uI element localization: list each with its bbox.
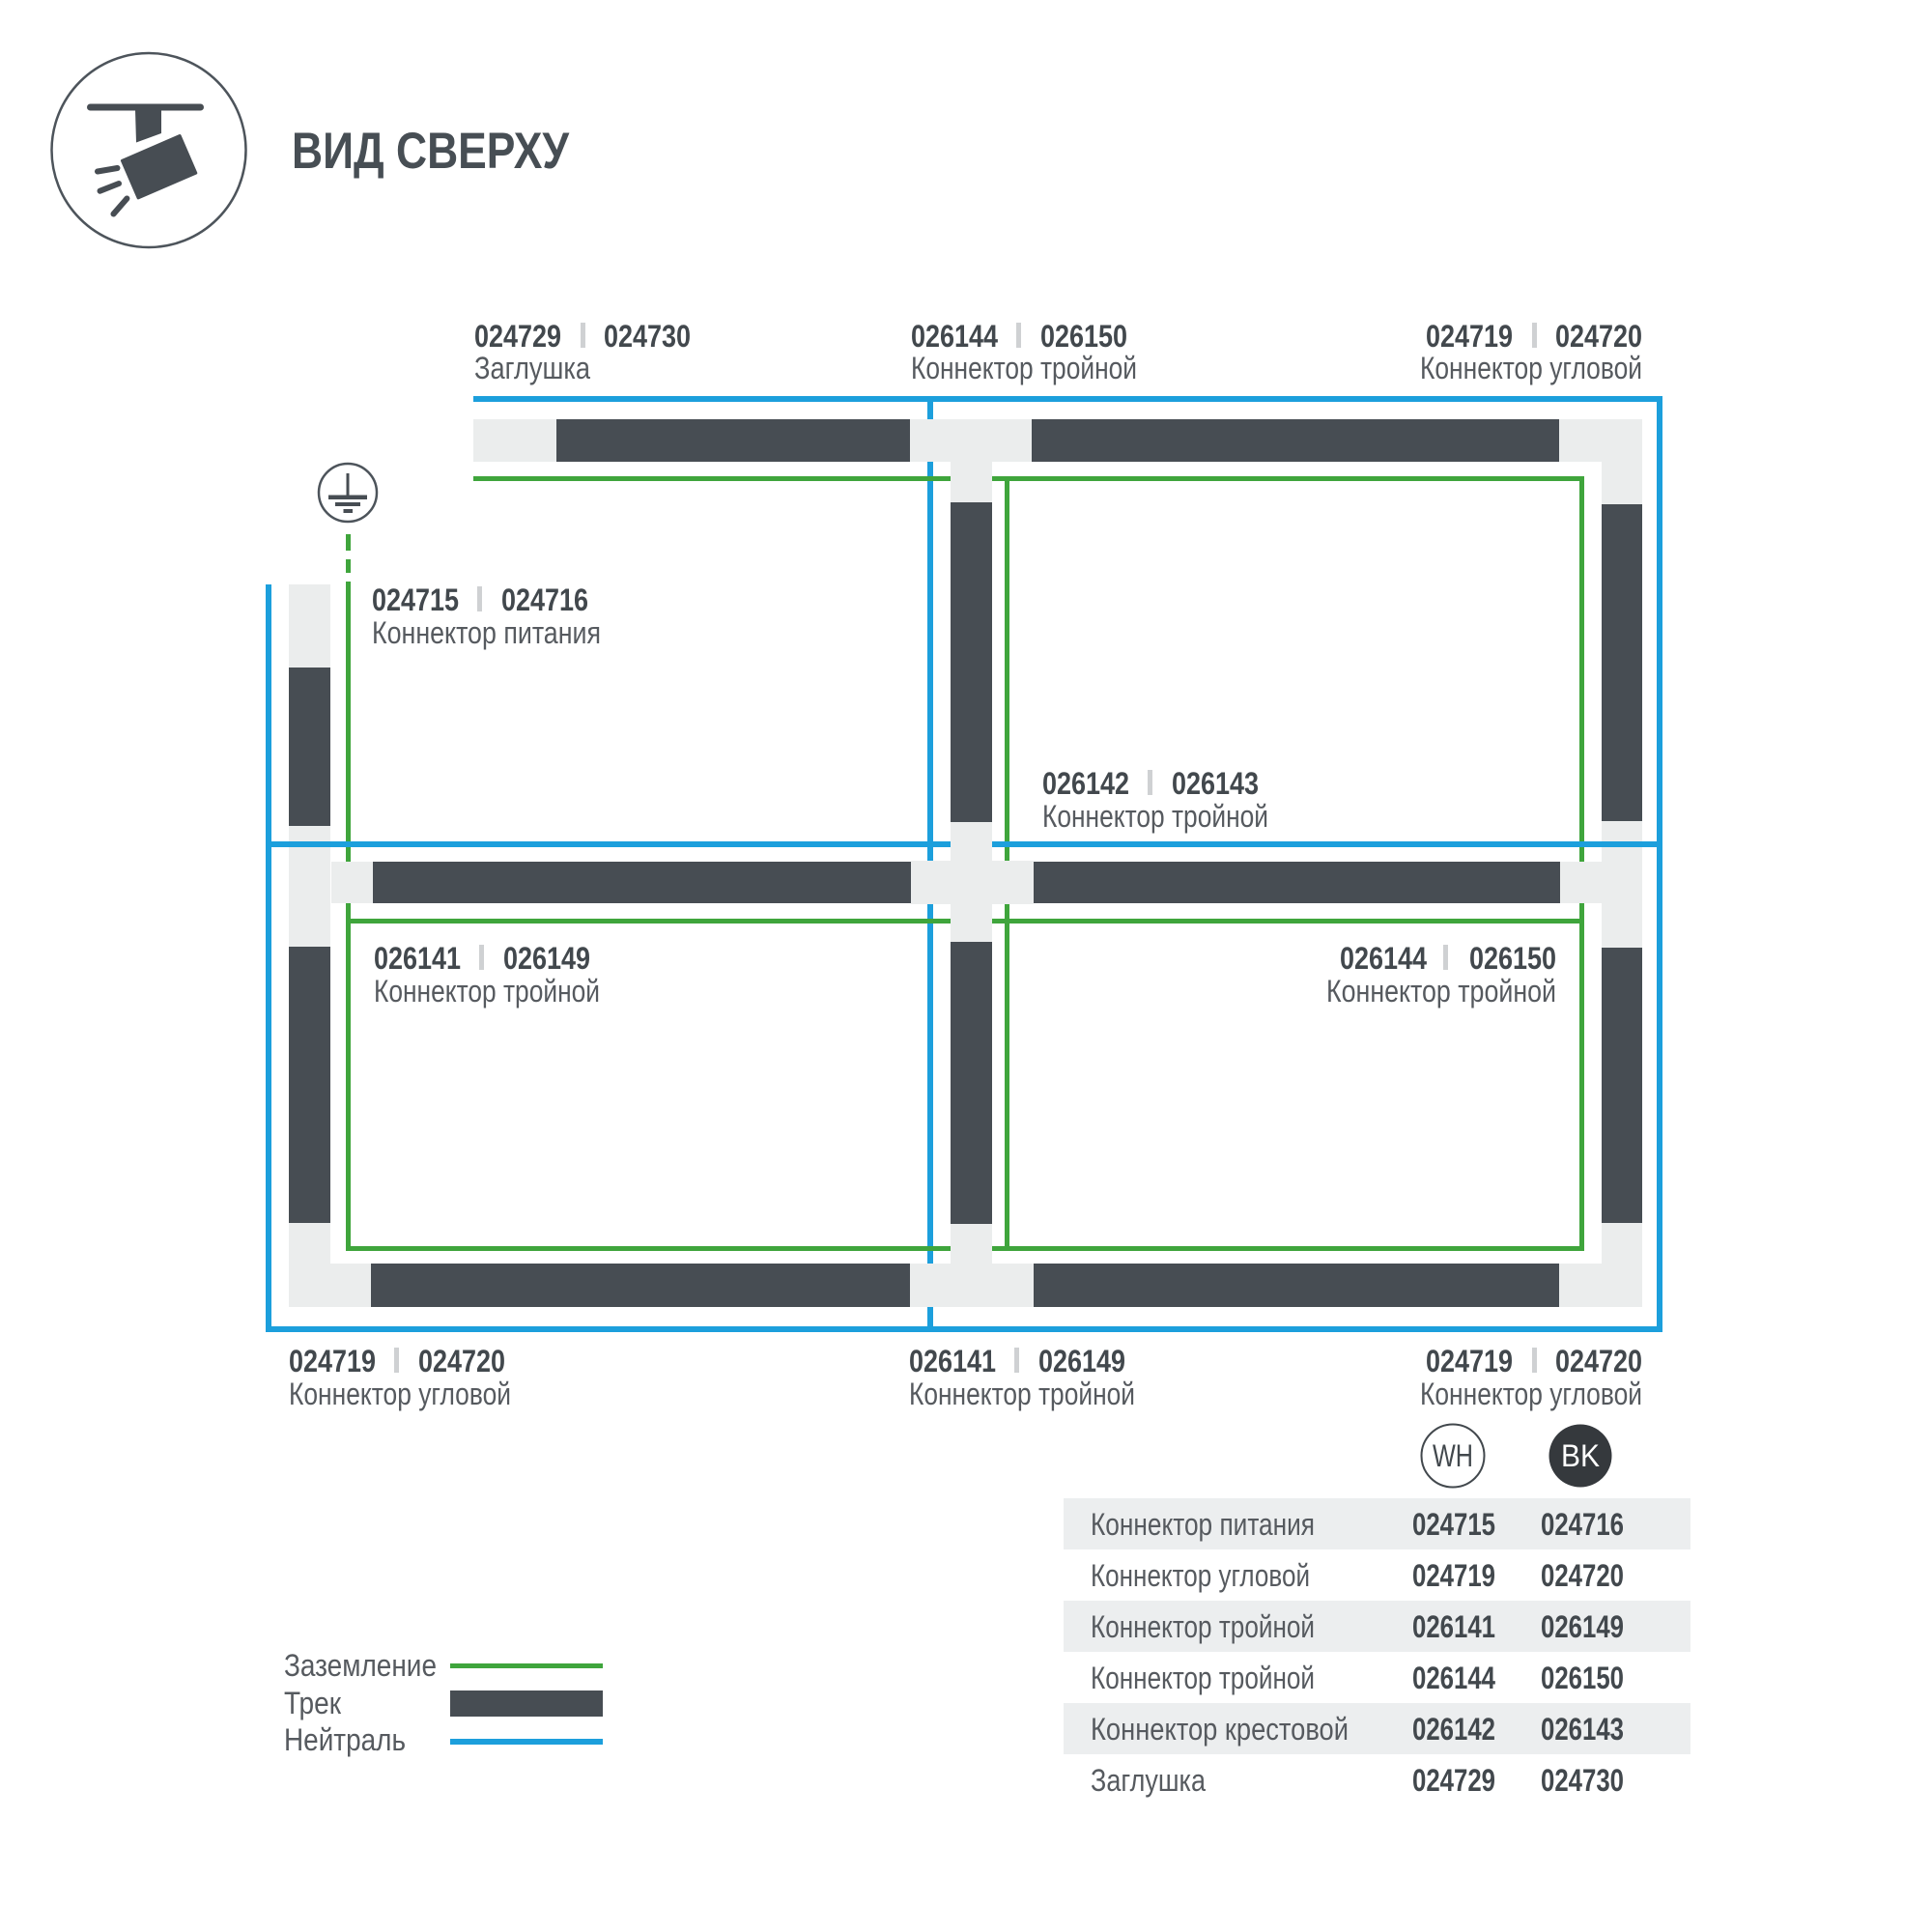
svg-text:Коннектор угловой: Коннектор угловой [1420, 1377, 1642, 1411]
svg-text:WH: WH [1433, 1438, 1473, 1473]
svg-text:Коннектор питания: Коннектор питания [372, 615, 601, 650]
svg-text:026150: 026150 [1040, 319, 1127, 354]
svg-text:026141: 026141 [1412, 1609, 1495, 1644]
svg-text:Коннектор тройной: Коннектор тройной [1091, 1661, 1315, 1695]
svg-text:Коннектор тройной: Коннектор тройной [1326, 974, 1556, 1009]
svg-text:026143: 026143 [1172, 766, 1259, 801]
svg-text:024716: 024716 [501, 582, 588, 617]
svg-text:024720: 024720 [1555, 1344, 1642, 1378]
svg-text:Заглушка: Заглушка [1091, 1763, 1206, 1798]
svg-text:024729: 024729 [1412, 1763, 1495, 1798]
svg-text:Коннектор крестовой: Коннектор крестовой [1091, 1712, 1349, 1747]
svg-text:Коннектор тройной: Коннектор тройной [1091, 1609, 1315, 1644]
svg-text:024719: 024719 [1412, 1558, 1495, 1593]
svg-text:026144: 026144 [1340, 941, 1427, 976]
svg-text:Коннектор тройной: Коннектор тройной [1042, 799, 1268, 834]
svg-text:026142: 026142 [1412, 1712, 1495, 1747]
svg-text:024719: 024719 [289, 1344, 376, 1378]
svg-text:Заземление: Заземление [284, 1648, 437, 1683]
svg-text:Коннектор тройной: Коннектор тройной [909, 1377, 1135, 1411]
svg-text:Нейтраль: Нейтраль [284, 1722, 406, 1757]
svg-text:026149: 026149 [503, 941, 590, 976]
svg-text:Коннектор угловой: Коннектор угловой [1091, 1558, 1310, 1593]
svg-text:026144: 026144 [911, 319, 998, 354]
svg-text:026142: 026142 [1042, 766, 1129, 801]
svg-text:024729: 024729 [474, 319, 561, 354]
svg-text:Коннектор угловой: Коннектор угловой [289, 1377, 511, 1411]
svg-text:024719: 024719 [1426, 319, 1513, 354]
svg-text:ВИД СВЕРХУ: ВИД СВЕРХУ [292, 123, 570, 180]
svg-text:026141: 026141 [909, 1344, 996, 1378]
svg-text:026141: 026141 [374, 941, 461, 976]
svg-text:026149: 026149 [1541, 1609, 1624, 1644]
svg-text:026150: 026150 [1541, 1661, 1624, 1695]
svg-text:024720: 024720 [418, 1344, 505, 1378]
svg-text:Заглушка: Заглушка [474, 351, 590, 385]
svg-text:Коннектор угловой: Коннектор угловой [1420, 351, 1642, 385]
svg-text:026143: 026143 [1541, 1712, 1624, 1747]
svg-text:Коннектор тройной: Коннектор тройной [911, 351, 1137, 385]
svg-text:024720: 024720 [1555, 319, 1642, 354]
svg-text:Трек: Трек [284, 1686, 342, 1720]
svg-text:024730: 024730 [604, 319, 691, 354]
svg-text:BK: BK [1561, 1438, 1600, 1473]
svg-text:024716: 024716 [1541, 1507, 1624, 1542]
svg-text:024719: 024719 [1426, 1344, 1513, 1378]
svg-text:024715: 024715 [372, 582, 459, 617]
svg-text:026150: 026150 [1469, 941, 1556, 976]
svg-text:024715: 024715 [1412, 1507, 1495, 1542]
svg-text:024730: 024730 [1541, 1763, 1624, 1798]
svg-text:026149: 026149 [1038, 1344, 1125, 1378]
svg-text:026144: 026144 [1412, 1661, 1495, 1695]
svg-text:024720: 024720 [1541, 1558, 1624, 1593]
svg-text:Коннектор питания: Коннектор питания [1091, 1507, 1315, 1542]
svg-text:Коннектор тройной: Коннектор тройной [374, 974, 600, 1009]
